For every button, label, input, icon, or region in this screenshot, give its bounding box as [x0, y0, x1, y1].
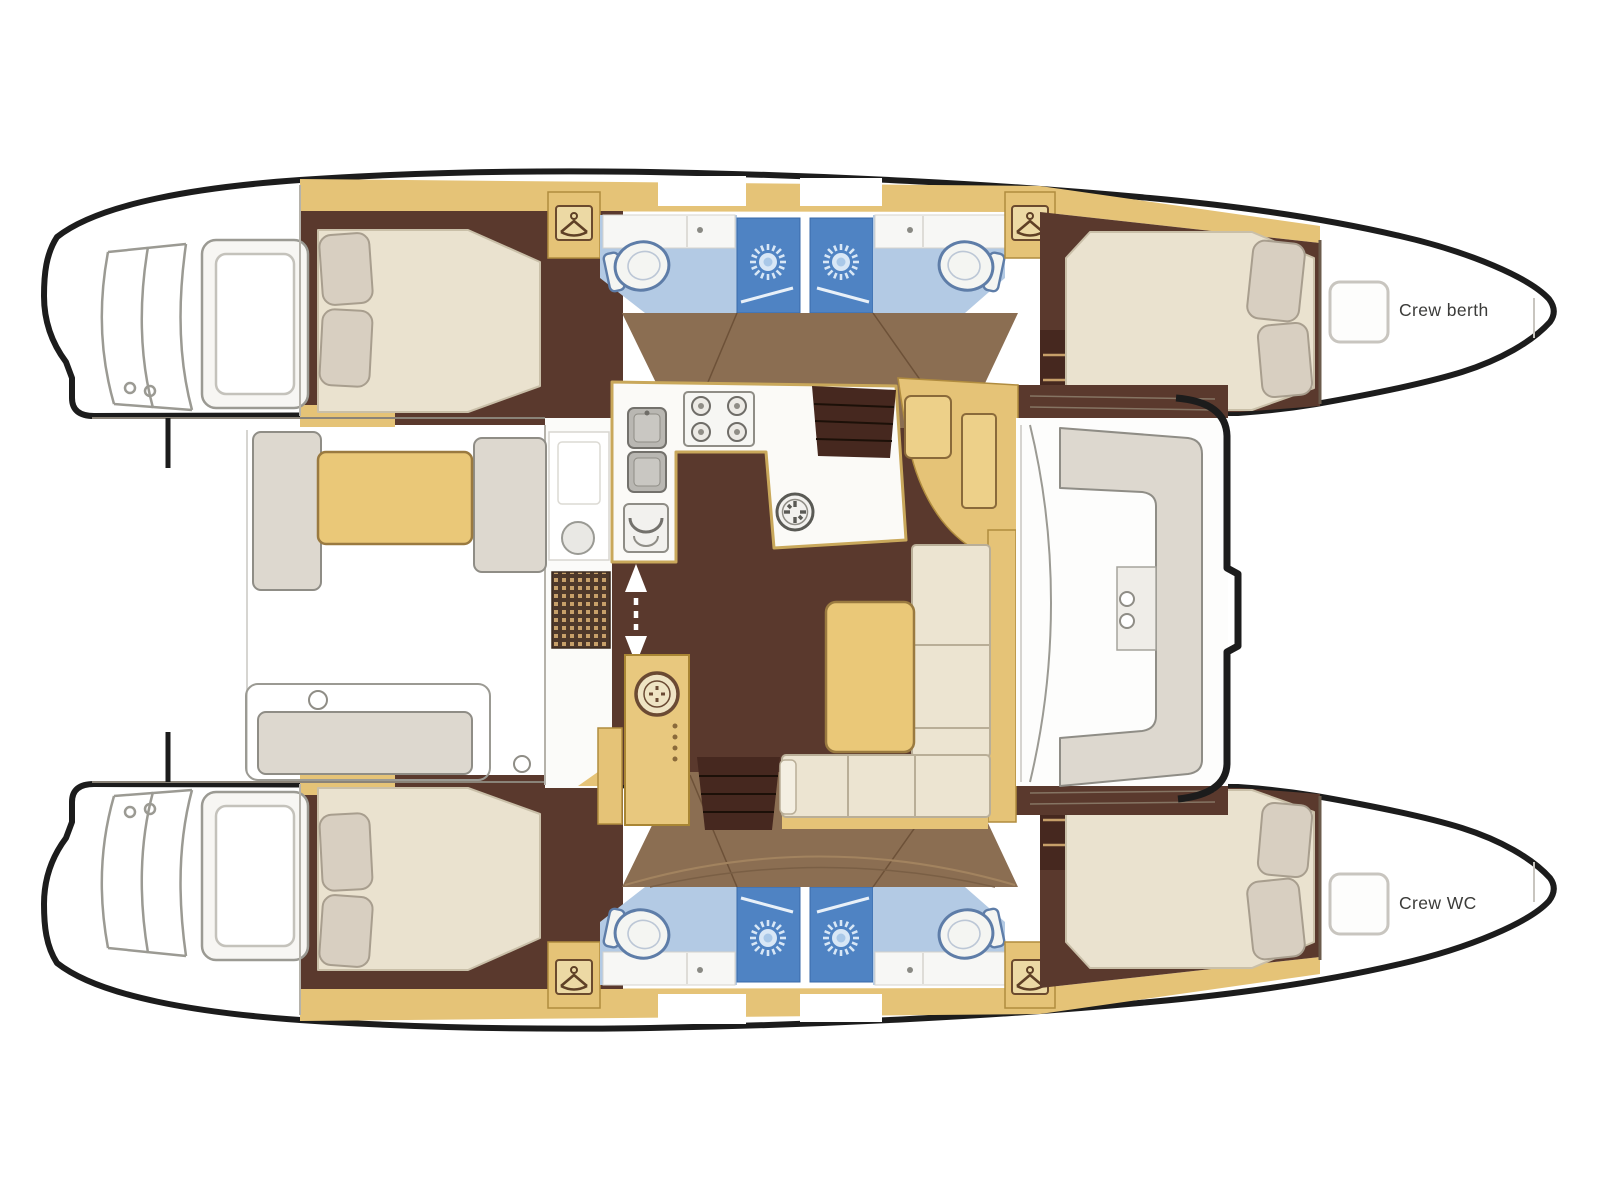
shower-head-sun-icon — [823, 244, 859, 280]
vanity-counter — [603, 215, 735, 248]
steps-to-starboard-hull — [697, 757, 780, 830]
stove-burner-icon — [692, 423, 710, 441]
stove-burner-icon — [692, 397, 710, 415]
pillow — [1246, 877, 1306, 960]
stove-burner-icon — [728, 397, 746, 415]
shelf-gap — [800, 178, 882, 206]
salon-table — [826, 602, 914, 752]
cockpit-bench — [474, 438, 546, 572]
crew-wc-label: Crew WC — [1399, 893, 1477, 914]
pillow — [319, 232, 374, 305]
cockpit-table — [318, 452, 472, 544]
sink-icon — [645, 411, 650, 416]
crew-wc-hatch — [1330, 874, 1388, 934]
sofa-armrest — [780, 760, 796, 814]
crew-berth-label: Crew berth — [1399, 300, 1489, 321]
pillow — [1246, 239, 1306, 322]
sink-icon — [697, 227, 703, 233]
shelf-gap — [658, 176, 746, 206]
table-mount — [309, 691, 327, 709]
aft-cockpit — [92, 418, 546, 785]
pillow — [1257, 802, 1313, 878]
vanity-counter — [603, 952, 735, 985]
sofa-cushions — [782, 755, 990, 817]
table-mount — [1120, 614, 1134, 628]
chart-table — [962, 414, 996, 508]
stove-burner-icon — [728, 423, 746, 441]
table-mount — [1120, 592, 1134, 606]
floor-plan: Crew berth Crew WC — [0, 0, 1600, 1201]
pillow — [1257, 322, 1313, 398]
crew-berth-hatch — [1330, 282, 1388, 342]
shelf-gap — [800, 994, 882, 1022]
door-wheel-icon — [636, 673, 678, 715]
oven-icon — [624, 504, 668, 552]
cockpit-bench — [258, 712, 472, 774]
sink-icon — [697, 967, 703, 973]
floor-grate — [552, 572, 610, 648]
steps-to-port-hull — [812, 386, 896, 458]
shelf-gap — [658, 994, 746, 1024]
table-mount — [514, 756, 530, 772]
vanity-counter — [875, 952, 1005, 985]
cockpit-table — [1117, 567, 1156, 650]
forward-cockpit — [1016, 398, 1238, 799]
vanity-counter — [875, 215, 1005, 248]
sofa-cushions — [912, 545, 990, 757]
sink-icon — [907, 967, 913, 973]
shower-head-sun-icon — [750, 920, 786, 956]
floor-plan-canvas — [0, 0, 1600, 1201]
cockpit-bench — [253, 432, 321, 590]
pillow — [319, 813, 373, 892]
sofa-backrest — [988, 530, 1016, 822]
deck-hatch-wheel-icon — [777, 494, 813, 530]
pillow — [319, 894, 374, 967]
pillow — [319, 309, 373, 388]
shower-head-sun-icon — [823, 920, 859, 956]
sink-icon — [907, 227, 913, 233]
pillar — [598, 728, 622, 824]
shower-head-sun-icon — [750, 244, 786, 280]
nav-seat — [905, 396, 951, 458]
round-sink-icon — [562, 522, 594, 554]
